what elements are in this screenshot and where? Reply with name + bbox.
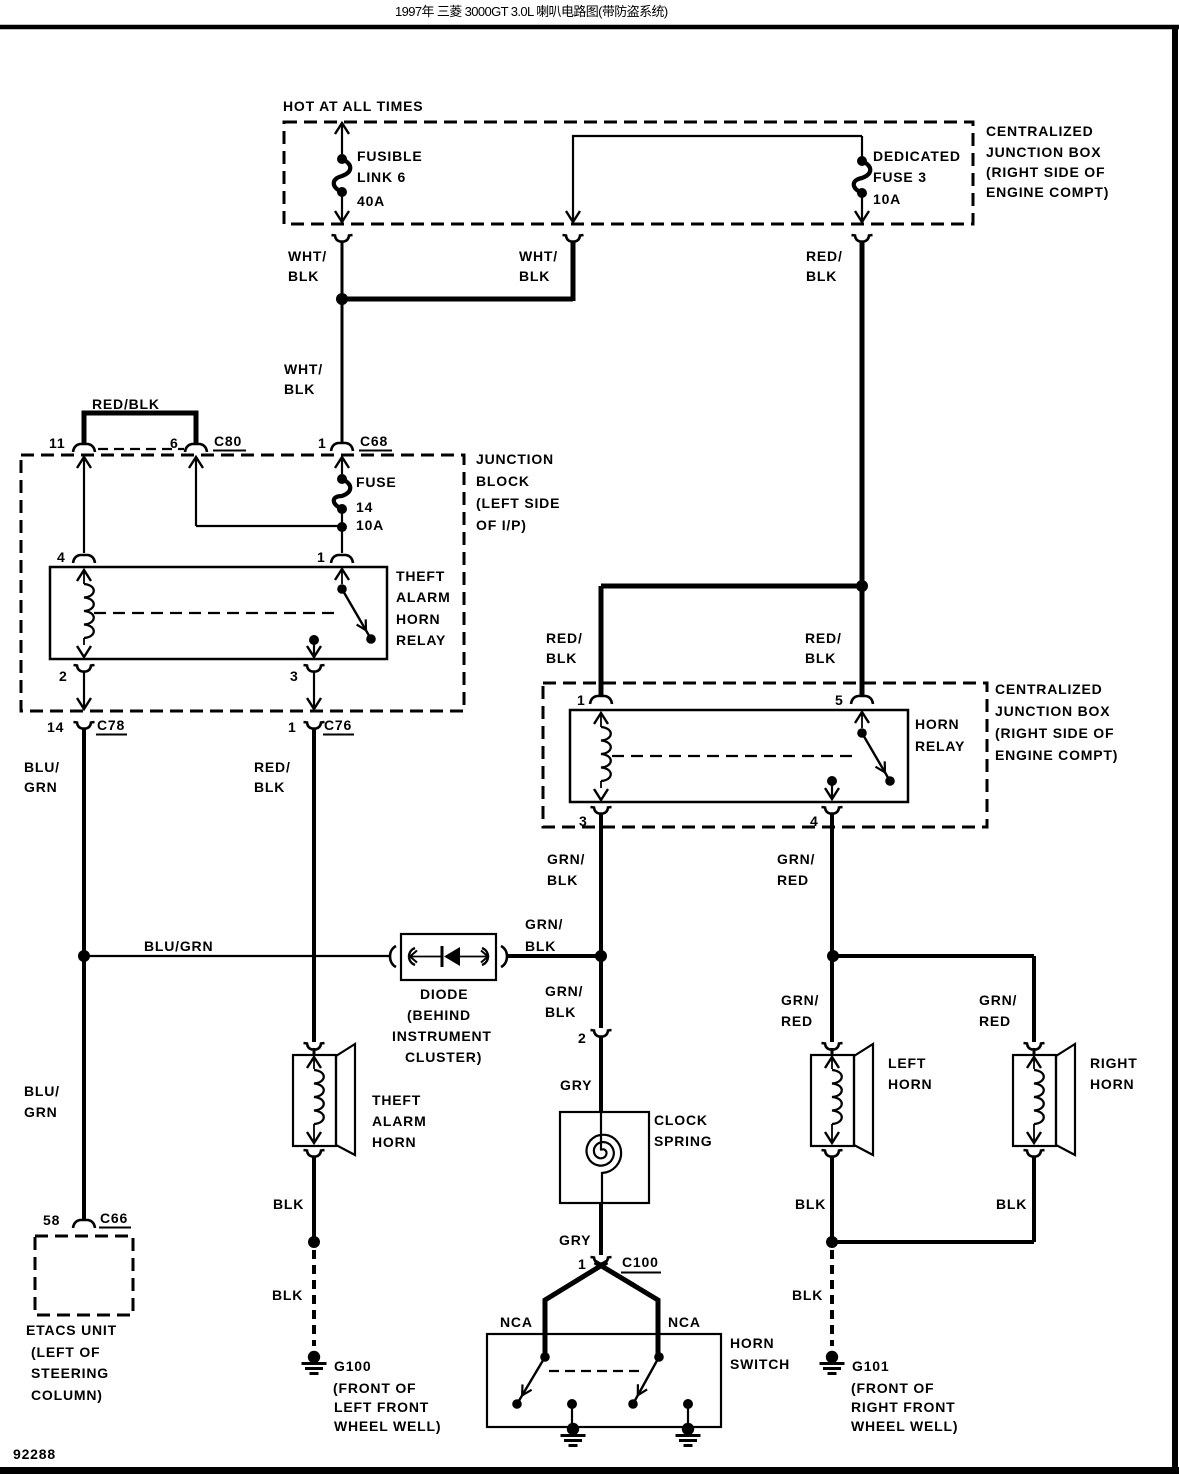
svg-text:GRN/: GRN/ (777, 851, 815, 867)
svg-text:OF I/P): OF I/P) (476, 517, 527, 533)
svg-text:C76: C76 (324, 717, 352, 733)
svg-text:40A: 40A (357, 193, 385, 209)
svg-text:GRY: GRY (560, 1077, 592, 1093)
svg-text:1: 1 (577, 692, 586, 708)
svg-text:C66: C66 (100, 1210, 128, 1226)
svg-text:THEFT: THEFT (396, 568, 445, 584)
svg-text:6: 6 (170, 435, 179, 451)
svg-text:BLU/: BLU/ (24, 759, 60, 775)
svg-text:BLK: BLK (525, 938, 556, 954)
svg-text:ENGINE COMPT): ENGINE COMPT) (986, 184, 1109, 200)
svg-text:LEFT FRONT: LEFT FRONT (334, 1399, 429, 1415)
svg-text:BLK: BLK (795, 1196, 826, 1212)
svg-text:92288: 92288 (13, 1446, 56, 1462)
svg-text:HORN: HORN (915, 716, 959, 732)
svg-text:RED/: RED/ (254, 759, 291, 775)
svg-text:2: 2 (578, 1030, 587, 1046)
svg-text:BLK: BLK (806, 268, 837, 284)
svg-text:THEFT: THEFT (372, 1092, 421, 1108)
svg-text:(LEFT OF: (LEFT OF (31, 1344, 100, 1360)
svg-text:GRY: GRY (559, 1232, 591, 1248)
svg-text:BLK: BLK (273, 1196, 304, 1212)
svg-text:HORN: HORN (888, 1076, 932, 1092)
svg-text:CLUSTER): CLUSTER) (405, 1049, 482, 1065)
svg-text:JUNCTION BOX: JUNCTION BOX (986, 144, 1101, 160)
svg-text:C68: C68 (360, 433, 388, 449)
svg-text:RELAY: RELAY (396, 632, 446, 648)
svg-text:C80: C80 (214, 433, 242, 449)
svg-text:RED/: RED/ (546, 630, 583, 646)
svg-text:NCA: NCA (500, 1314, 533, 1330)
svg-text:CENTRALIZED: CENTRALIZED (986, 123, 1094, 139)
svg-text:1: 1 (578, 1256, 587, 1272)
svg-text:ENGINE COMPT): ENGINE COMPT) (995, 747, 1118, 763)
svg-text:10A: 10A (873, 191, 901, 207)
svg-text:SWITCH: SWITCH (730, 1356, 790, 1372)
svg-text:(FRONT OF: (FRONT OF (333, 1380, 416, 1396)
svg-text:BLK: BLK (254, 779, 285, 795)
svg-text:NCA: NCA (668, 1314, 701, 1330)
svg-text:WHEEL WELL): WHEEL WELL) (334, 1418, 441, 1434)
svg-text:RED: RED (777, 872, 809, 888)
svg-text:58: 58 (43, 1212, 60, 1228)
svg-text:2: 2 (59, 668, 68, 684)
svg-text:WHT/: WHT/ (288, 248, 327, 264)
svg-text:COLUMN): COLUMN) (31, 1387, 103, 1403)
svg-text:GRN/: GRN/ (545, 983, 583, 999)
svg-text:C78: C78 (97, 717, 125, 733)
svg-text:3: 3 (579, 813, 588, 829)
svg-text:DEDICATED: DEDICATED (873, 148, 961, 164)
svg-text:1: 1 (318, 435, 327, 451)
svg-text:WHEEL WELL): WHEEL WELL) (851, 1418, 958, 1434)
svg-text:10A: 10A (356, 517, 384, 533)
svg-text:14: 14 (47, 719, 64, 735)
svg-text:G101: G101 (852, 1358, 889, 1374)
svg-text:1: 1 (288, 719, 297, 735)
svg-text:RED/: RED/ (806, 248, 843, 264)
svg-text:(RIGHT SIDE OF: (RIGHT SIDE OF (986, 164, 1105, 180)
svg-text:LINK 6: LINK 6 (357, 169, 406, 185)
svg-text:RIGHT FRONT: RIGHT FRONT (851, 1399, 955, 1415)
svg-text:BLU/GRN: BLU/GRN (144, 938, 213, 954)
svg-text:BLK: BLK (792, 1287, 823, 1303)
svg-text:BLK: BLK (519, 268, 550, 284)
svg-text:4: 4 (810, 813, 819, 829)
svg-text:GRN: GRN (24, 779, 58, 795)
svg-text:BLU/: BLU/ (24, 1083, 60, 1099)
svg-text:4: 4 (57, 549, 66, 565)
svg-text:DIODE: DIODE (420, 986, 468, 1002)
svg-text:JUNCTION: JUNCTION (476, 451, 554, 467)
svg-text:STEERING: STEERING (31, 1365, 109, 1381)
svg-text:(RIGHT SIDE OF: (RIGHT SIDE OF (995, 725, 1114, 741)
svg-text:RED/: RED/ (805, 630, 842, 646)
svg-text:HORN: HORN (730, 1335, 774, 1351)
svg-text:1997年 三菱 3000GT 3.0L 喇叭电路图(带防盗: 1997年 三菱 3000GT 3.0L 喇叭电路图(带防盗系统) (395, 4, 669, 19)
svg-text:CLOCK: CLOCK (654, 1112, 708, 1128)
svg-text:RIGHT: RIGHT (1090, 1055, 1138, 1071)
svg-text:GRN/: GRN/ (525, 916, 563, 932)
svg-text:HORN: HORN (396, 611, 440, 627)
svg-text:BLK: BLK (996, 1196, 1027, 1212)
svg-text:GRN/: GRN/ (979, 992, 1017, 1008)
svg-text:ETACS UNIT: ETACS UNIT (26, 1322, 117, 1338)
svg-text:BLK: BLK (805, 650, 836, 666)
svg-text:14: 14 (356, 499, 373, 515)
svg-text:HOT AT ALL TIMES: HOT AT ALL TIMES (283, 98, 423, 114)
svg-text:BLK: BLK (288, 268, 319, 284)
svg-text:JUNCTION BOX: JUNCTION BOX (995, 703, 1110, 719)
svg-text:BLK: BLK (545, 1004, 576, 1020)
svg-text:ALARM: ALARM (396, 589, 451, 605)
svg-text:(FRONT OF: (FRONT OF (851, 1380, 934, 1396)
svg-text:G100: G100 (334, 1358, 371, 1374)
svg-text:INSTRUMENT: INSTRUMENT (392, 1028, 492, 1044)
svg-text:RELAY: RELAY (915, 738, 965, 754)
svg-text:GRN: GRN (24, 1104, 58, 1120)
svg-text:WHT/: WHT/ (284, 361, 323, 377)
svg-text:GRN/: GRN/ (547, 851, 585, 867)
svg-text:11: 11 (49, 435, 65, 451)
svg-text:CENTRALIZED: CENTRALIZED (995, 681, 1103, 697)
svg-text:FUSE 3: FUSE 3 (873, 169, 927, 185)
svg-text:BLK: BLK (547, 872, 578, 888)
svg-text:WHT/: WHT/ (519, 248, 558, 264)
svg-text:BLK: BLK (284, 381, 315, 397)
svg-text:SPRING: SPRING (654, 1133, 712, 1149)
svg-text:(LEFT SIDE: (LEFT SIDE (476, 495, 560, 511)
svg-text:RED/BLK: RED/BLK (92, 396, 160, 412)
svg-text:FUSIBLE: FUSIBLE (357, 148, 423, 164)
svg-text:C100: C100 (622, 1254, 659, 1270)
svg-text:GRN/: GRN/ (781, 992, 819, 1008)
svg-text:3: 3 (290, 668, 299, 684)
svg-text:5: 5 (835, 692, 844, 708)
svg-text:BLK: BLK (546, 650, 577, 666)
svg-text:BLOCK: BLOCK (476, 473, 530, 489)
svg-text:HORN: HORN (1090, 1076, 1134, 1092)
svg-text:RED: RED (781, 1013, 813, 1029)
svg-text:ALARM: ALARM (372, 1113, 427, 1129)
svg-text:(BEHIND: (BEHIND (407, 1007, 471, 1023)
svg-text:FUSE: FUSE (356, 474, 397, 490)
svg-text:LEFT: LEFT (888, 1055, 926, 1071)
svg-text:HORN: HORN (372, 1134, 416, 1150)
svg-text:1: 1 (317, 549, 326, 565)
svg-text:BLK: BLK (272, 1287, 303, 1303)
svg-text:RED: RED (979, 1013, 1011, 1029)
